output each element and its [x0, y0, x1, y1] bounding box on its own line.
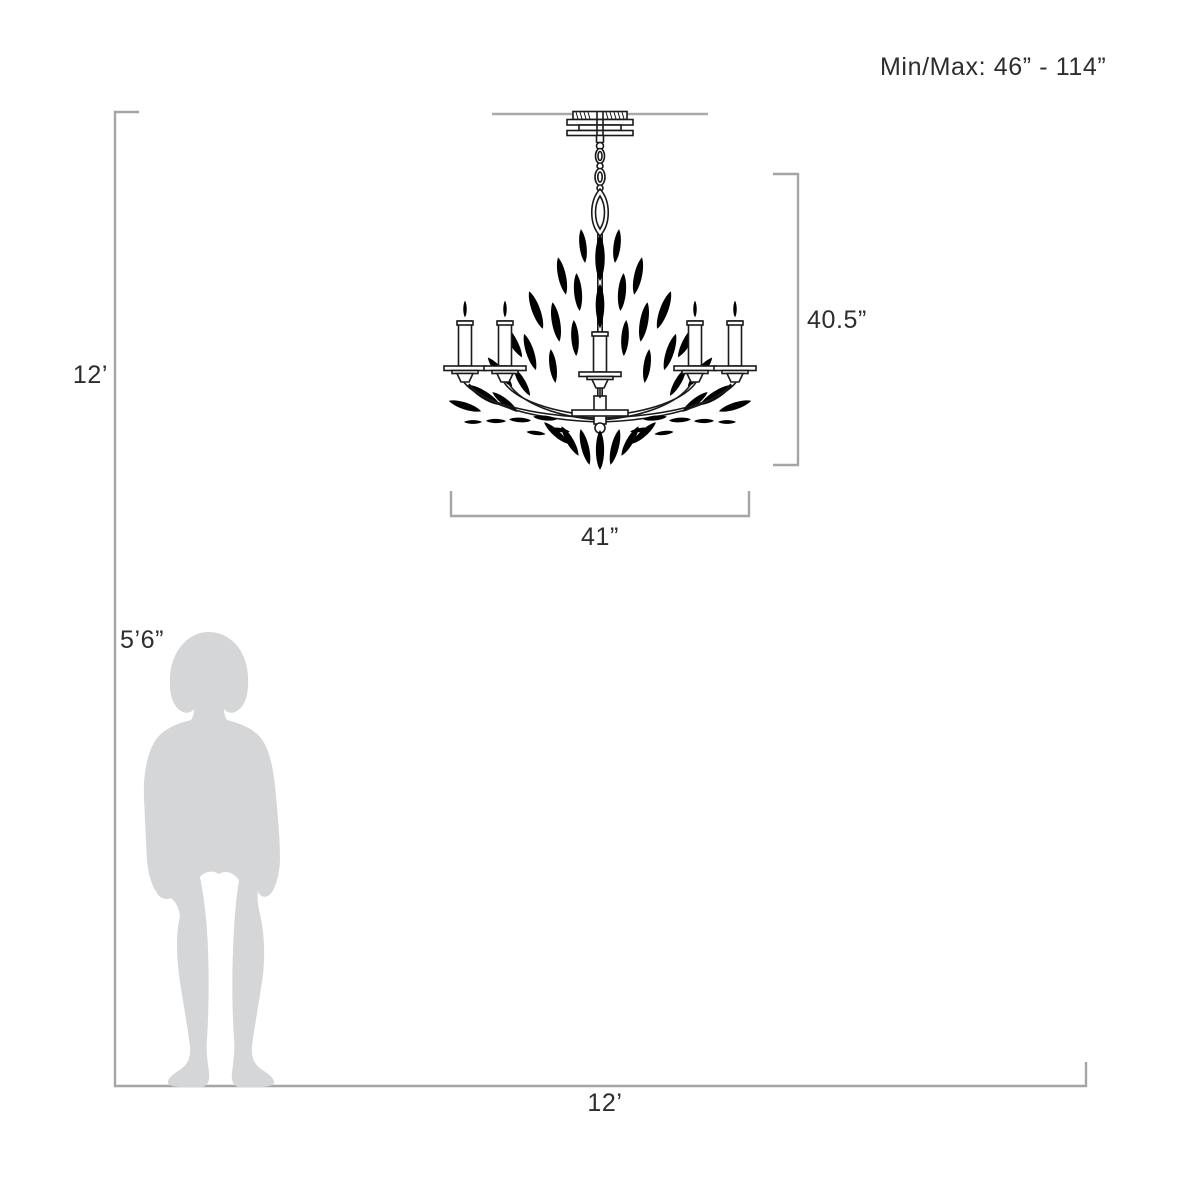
fixture-width-label: 41” — [540, 524, 660, 552]
top-finial — [592, 189, 609, 236]
person-height-label: 5’6” — [120, 627, 164, 655]
fixture-width-bracket — [451, 491, 749, 516]
min-max-label: Min/Max: 46” - 114” — [880, 54, 1106, 82]
canopy — [567, 112, 633, 136]
hanging-chain — [595, 136, 605, 192]
diagram-artwork — [0, 0, 1200, 1200]
center-hub — [572, 396, 628, 433]
person-silhouette — [144, 632, 280, 1087]
fixture-height-label: 40.5” — [807, 307, 867, 335]
candles — [444, 301, 756, 398]
room-width-label: 12’ — [545, 1090, 665, 1118]
room-height-label: 12’ — [40, 362, 108, 390]
dimension-diagram: Min/Max: 46” - 114” 12’ 5’6” 40.5” 41” 1… — [0, 0, 1200, 1200]
fixture-height-bracket — [773, 174, 798, 465]
chandelier-drawing — [444, 112, 756, 471]
